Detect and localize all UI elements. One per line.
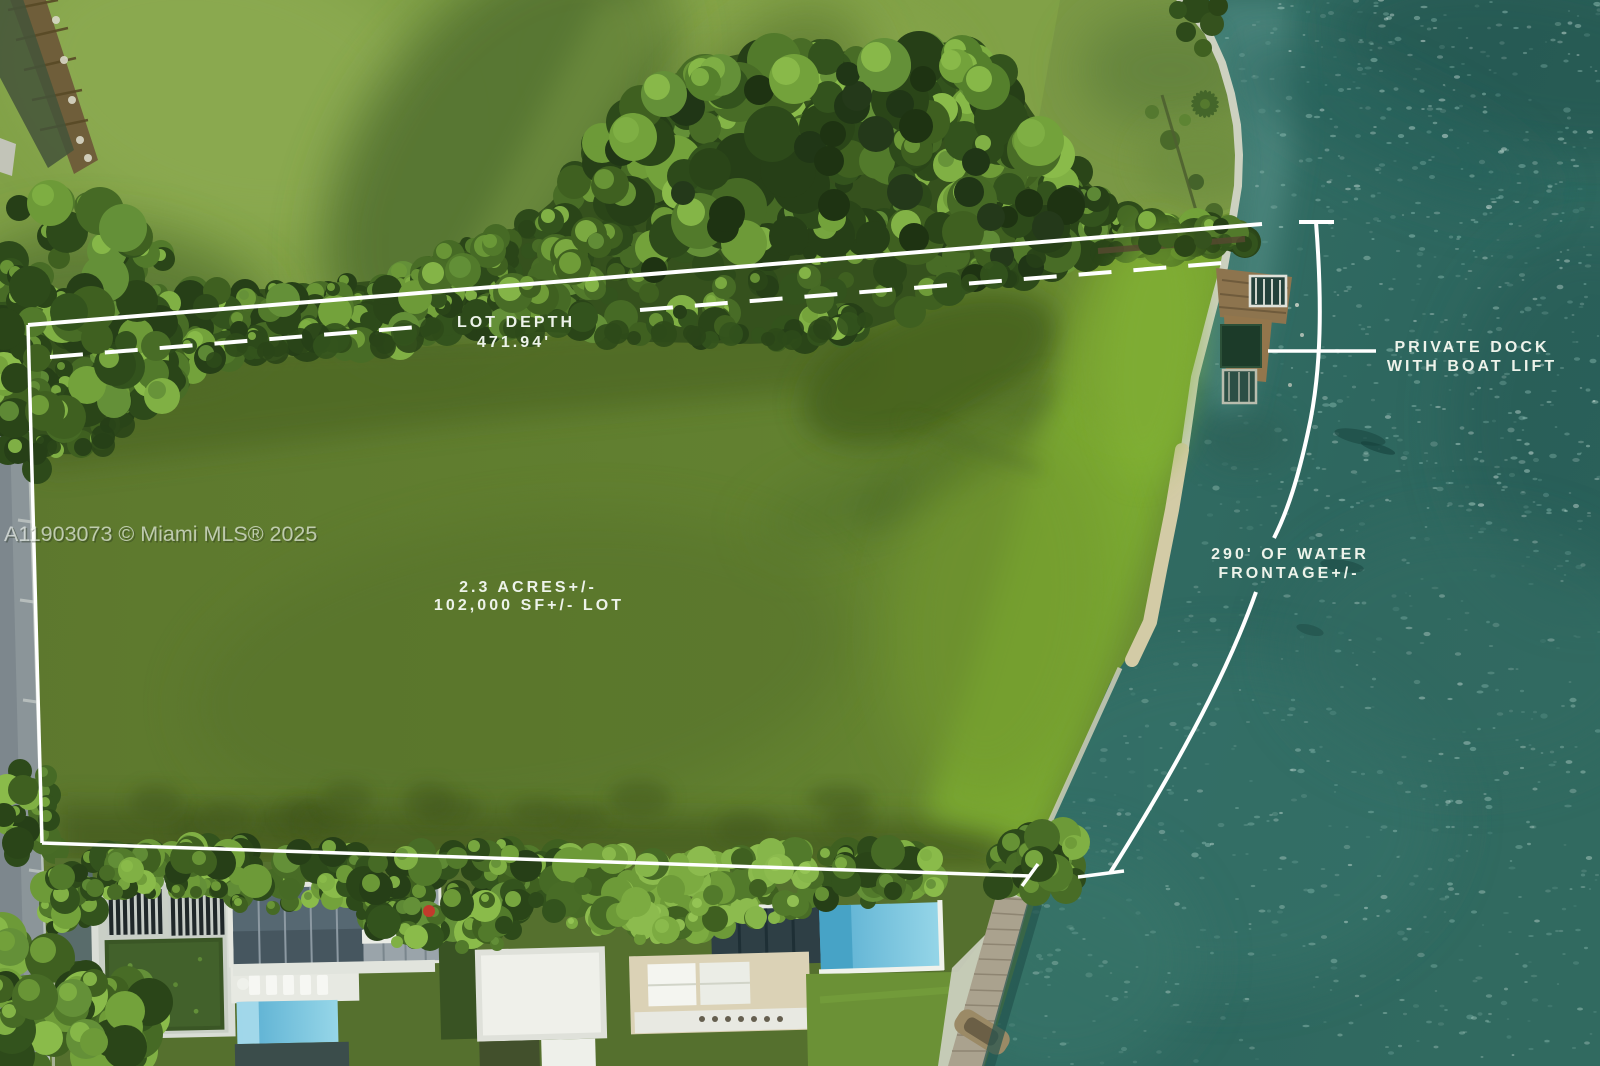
- svg-text:WITH BOAT LIFT: WITH BOAT LIFT: [1387, 358, 1557, 375]
- svg-text:PRIVATE DOCK: PRIVATE DOCK: [1394, 339, 1549, 356]
- svg-text:FRONTAGE+/-: FRONTAGE+/-: [1218, 565, 1359, 582]
- svg-text:2.3 ACRES+/-: 2.3 ACRES+/-: [459, 579, 597, 596]
- svg-text:290' OF WATER: 290' OF WATER: [1211, 546, 1369, 563]
- svg-text:LOT DEPTH: LOT DEPTH: [457, 314, 575, 331]
- svg-text:471.94': 471.94': [477, 334, 551, 351]
- svg-text:A11903073 © Miami MLS® 2025: A11903073 © Miami MLS® 2025: [4, 522, 317, 546]
- svg-text:102,000 SF+/- LOT: 102,000 SF+/- LOT: [434, 597, 624, 614]
